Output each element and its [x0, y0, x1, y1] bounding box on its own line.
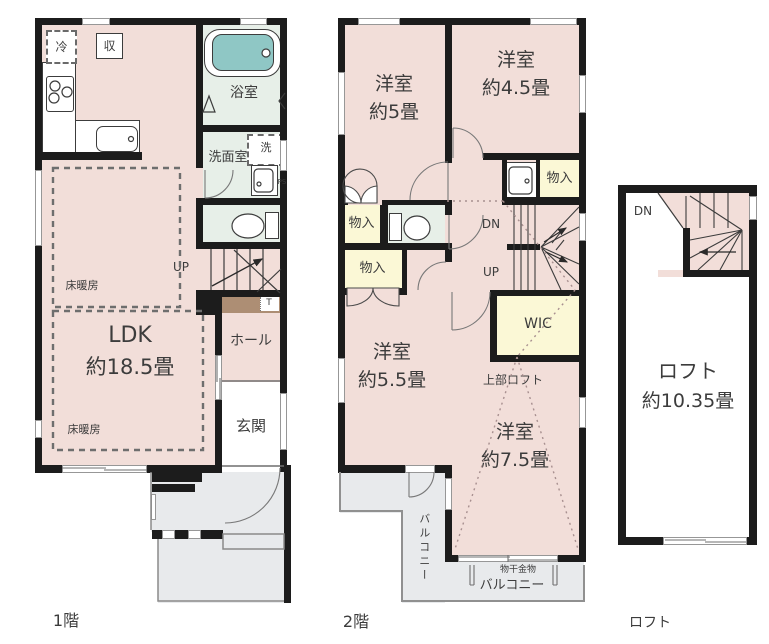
wall-segment [152, 484, 195, 492]
hall-sliding-door [215, 355, 222, 400]
ldk-size: 約18.5畳 [52, 353, 208, 381]
wall-segment [338, 465, 405, 473]
room75-name: 洋室 [454, 420, 576, 446]
window-2f-right-2 [579, 213, 586, 241]
wall-segment [196, 198, 287, 205]
closet3-label: 物入 [540, 160, 579, 197]
closet1-label: 物入 [343, 205, 380, 243]
toilet-tank-2f [389, 213, 402, 241]
room45-size: 約4.5畳 [455, 76, 577, 102]
wall-segment [445, 200, 452, 215]
pipe-space-label: PS [276, 169, 288, 197]
toilet-tank-1f [265, 212, 279, 239]
wall-segment [338, 243, 452, 250]
wall-segment [399, 288, 407, 295]
wall-segment [382, 200, 445, 205]
window-ldk-south [62, 465, 147, 473]
closet2-label: 物入 [343, 250, 402, 288]
loft-size: 約10.35畳 [624, 388, 752, 416]
wall-segment [683, 270, 749, 277]
washroom-label: 洗面室 [197, 150, 259, 166]
wall-segment [35, 465, 62, 473]
wall-segment [284, 465, 291, 603]
wall-segment [152, 473, 202, 482]
vanity [251, 165, 278, 196]
wall-segment [749, 185, 757, 545]
room-7-5 [452, 465, 579, 555]
porch-window [151, 494, 156, 520]
wall-segment [490, 290, 497, 357]
wall-segment [502, 197, 579, 205]
stairs-dn-label-2f: DN [477, 216, 505, 232]
window-1f-left-lower [35, 420, 42, 438]
wall-segment [196, 242, 287, 249]
room75-size: 約7.5畳 [454, 448, 576, 474]
wall-segment [490, 290, 579, 296]
floor1-caption: 1階 [44, 610, 88, 632]
storage-label: 収 [96, 33, 123, 59]
floor-plan: 冷 収 浴室 洗 洗面室 PS UP T ホール 玄関 床暖房 床暖房 LDK … [0, 0, 769, 644]
hall-label: ホール [222, 332, 280, 350]
stove [46, 76, 74, 112]
wall-segment [215, 315, 222, 355]
bath-label: 浴室 [216, 84, 272, 102]
gate-gap-1 [162, 530, 175, 539]
wall-segment [483, 153, 579, 160]
room5-name: 洋室 [344, 72, 444, 98]
wall-segment [618, 185, 626, 545]
balcony-label-south: バルコニー [462, 577, 562, 594]
washbasin-2f [506, 162, 537, 199]
room55-size: 約5.5畳 [342, 368, 442, 394]
window-7-5-left [445, 478, 452, 510]
wall-segment [196, 297, 222, 315]
kitchen-sink [96, 126, 138, 152]
floor-heating-label-2: 床暖房 [58, 422, 110, 437]
ldk-name: LDK [70, 322, 190, 350]
wall-segment [445, 555, 458, 562]
wall-segment [196, 25, 203, 132]
window-7-5-south [458, 555, 558, 562]
fridge-label: 冷 [46, 30, 77, 64]
wall-segment [42, 152, 142, 160]
stairs-dn-label-loft: DN [628, 203, 658, 219]
loft-name: ロフト [628, 357, 748, 385]
wall-segment [215, 400, 222, 465]
stairs-up-label-2f: UP [477, 264, 505, 280]
loft-stairs [658, 193, 749, 277]
wall-segment [196, 125, 287, 132]
porch-lower [158, 532, 284, 603]
wall-segment [507, 244, 540, 250]
stairs-up-label-1f: UP [168, 259, 194, 275]
wall-segment [196, 290, 287, 297]
window-1f-top-left [82, 18, 110, 25]
bathtub-water [212, 34, 274, 71]
window-2f-right-1 [579, 75, 586, 113]
window-1f-left-upper [35, 170, 42, 246]
window-2f-top-2 [530, 18, 577, 25]
loft-caption: ロフト [618, 613, 682, 633]
wic-label: WIC [497, 315, 579, 333]
wall-segment [445, 248, 452, 262]
wall-segment [558, 555, 586, 562]
window-1f-bath [240, 18, 267, 25]
wall-segment [445, 510, 452, 555]
wall-segment [402, 250, 407, 288]
shoe-cabinet-label: T [260, 297, 278, 311]
window-loft-right [749, 196, 757, 220]
balcony-label-vertical: バルコニー [414, 498, 434, 598]
balcony-door-opening [405, 465, 435, 473]
gate-gap-2 [188, 530, 201, 539]
room5-size: 約5畳 [344, 100, 444, 126]
wall-segment [380, 205, 388, 248]
wall-segment [338, 288, 347, 295]
floor2-caption: 2階 [334, 611, 378, 633]
entrance-label: 玄関 [222, 418, 280, 436]
upper-loft-label: 上部ロフト [468, 372, 558, 389]
window-2f-top-1 [358, 18, 400, 25]
laundry-hardware-label: 物干金物 [478, 565, 558, 577]
wall-segment [445, 18, 452, 163]
floor-heating-label-1: 床暖房 [56, 278, 108, 293]
room55-name: 洋室 [342, 340, 442, 366]
wall-segment [490, 355, 579, 362]
window-loft-south [663, 537, 747, 545]
wall-segment [618, 185, 757, 193]
entrance-door [280, 393, 287, 450]
room45-name: 洋室 [455, 48, 577, 74]
window-2f-right-3 [579, 397, 586, 428]
wall-segment [147, 465, 222, 473]
